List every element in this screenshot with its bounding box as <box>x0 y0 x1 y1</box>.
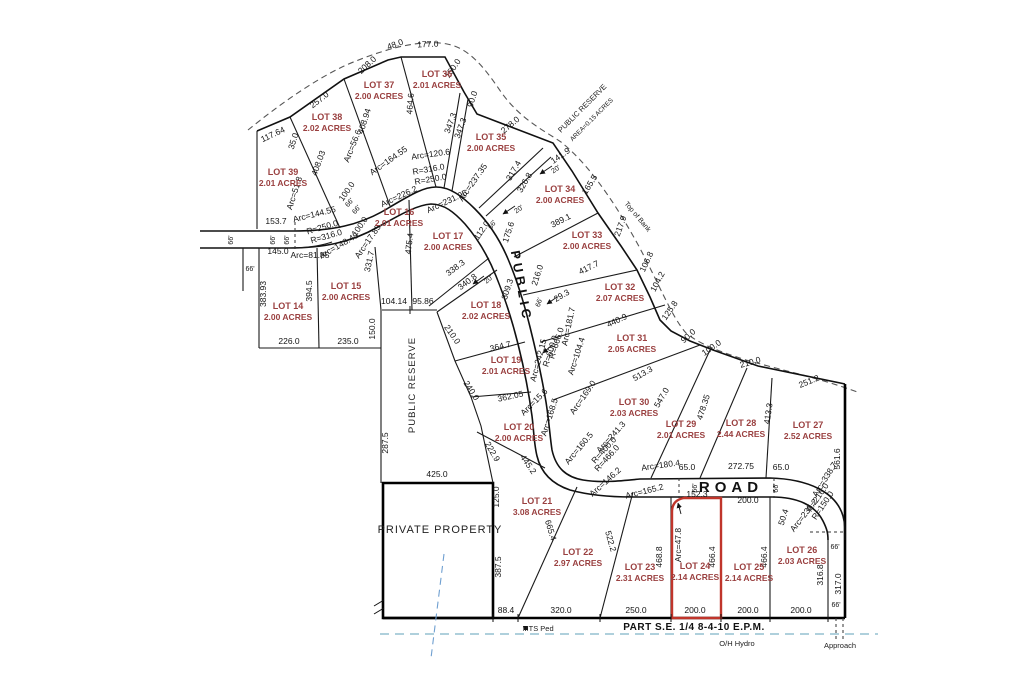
hydro-diagonal-line <box>431 554 444 658</box>
dim-label: Arc=180.4 <box>641 457 681 472</box>
dim-label: 272.75 <box>728 461 754 471</box>
lot-acres-label: 2.01 ACRES <box>482 366 531 376</box>
lot-acres-label: 2.00 ACRES <box>355 91 404 101</box>
lot-name-label: LOT 36 <box>422 69 453 79</box>
lot-acres-label: 2.02 ACRES <box>462 311 511 321</box>
lot-acres-label: 2.07 ACRES <box>596 293 645 303</box>
dim-label: 364.7 <box>489 339 512 354</box>
lot-acres-label: 2.14 ACRES <box>671 572 720 582</box>
lot-name-label: LOT 23 <box>625 562 656 572</box>
lot-name-label: LOT 18 <box>471 300 502 310</box>
dim-label: 362.05 <box>497 388 525 403</box>
lot-acres-label: 2.03 ACRES <box>610 408 659 418</box>
dim-label: 65.0 <box>773 462 790 472</box>
lot-name-label: LOT 25 <box>734 562 765 572</box>
dim-label: 66' <box>351 204 362 215</box>
dim-label: 338.3 <box>444 257 467 278</box>
dim-label: 389.1 <box>549 211 573 230</box>
lot-acres-label: 3.08 ACRES <box>513 507 562 517</box>
dim-label: 35.0 <box>286 131 301 150</box>
lot-name-label: LOT 28 <box>726 418 757 428</box>
dim-label: PRIVATE PROPERTY <box>378 524 503 536</box>
lot-name-label: LOT 39 <box>268 167 299 177</box>
dim-label: 235.0 <box>337 336 359 346</box>
lot-name-label: LOT 30 <box>619 397 650 407</box>
dim-label: Arc=169.0 <box>567 378 598 416</box>
lot-acres-label: 2.97 ACRES <box>554 558 603 568</box>
dim-label: 413.3 <box>762 402 775 425</box>
lot-acres-label: 2.31 ACRES <box>616 573 665 583</box>
lot-name-label: LOT 35 <box>476 132 507 142</box>
lot-name-label: LOT 19 <box>491 355 522 365</box>
lot-acres-label: 2.52 ACRES <box>784 431 833 441</box>
dim-label: 217.9 <box>612 214 629 238</box>
dim-label: 257.0 <box>308 89 331 110</box>
road-name-road: ROAD <box>699 479 763 496</box>
dim-label: 145.0 <box>267 246 289 256</box>
dim-label: 100.0 <box>336 179 357 202</box>
dim-label: 383.93 <box>258 281 268 307</box>
lot-acres-label: 2.02 ACRES <box>303 123 352 133</box>
dim-label: 50.4 <box>776 507 791 526</box>
dim-label: 316.8 <box>815 564 825 586</box>
dim-label: MTS Ped <box>522 624 553 633</box>
label-layer: 117.64257.0208.048.0177.0150.090.0278.01… <box>228 37 856 650</box>
lot-name-label: LOT 33 <box>572 230 603 240</box>
plat-map-page: 117.64257.0208.048.0177.0150.090.0278.01… <box>0 0 1024 682</box>
dim-label: 216.0 <box>529 263 545 287</box>
lot-name-label: LOT 38 <box>312 112 343 122</box>
lot-acres-label: 2.01 ACRES <box>413 80 462 90</box>
lot-name-label: LOT 32 <box>605 282 636 292</box>
dim-label: 408.94 <box>355 107 373 135</box>
lot-name-label: LOT 15 <box>331 281 362 291</box>
dim-label: 153.7 <box>265 216 287 226</box>
dim-label: 340.8 <box>456 271 479 292</box>
dim-label: 177.0 <box>417 38 439 49</box>
dim-label: 522.2 <box>603 530 619 553</box>
lot-name-label: LOT 26 <box>787 545 818 555</box>
dim-label: 475.4 <box>403 232 416 255</box>
lot-acres-label: 2.01 ACRES <box>375 218 424 228</box>
dim-label: 464.6 <box>404 92 416 114</box>
dim-label: 150.0 <box>367 318 377 340</box>
dim-label: 320.0 <box>550 605 572 615</box>
dim-label: 200.0 <box>790 605 812 615</box>
dim-label: 250.0 <box>625 605 647 615</box>
dim-label: 65.0 <box>679 462 696 472</box>
dim-label: 104.14 <box>381 296 407 306</box>
dim-label: 240.0 <box>462 379 482 403</box>
dim-label: 210.0 <box>739 354 762 370</box>
dim-label: 66' <box>831 602 840 609</box>
dim-label: 66' <box>228 235 235 244</box>
dim-label: 417.7 <box>577 258 601 276</box>
lot-name-label: LOT 34 <box>545 184 576 194</box>
dim-label: 226.0 <box>278 336 300 346</box>
lot-name-label: LOT 21 <box>522 496 553 506</box>
dim-label: 20' <box>550 164 561 175</box>
lot-name-label: LOT 27 <box>793 420 824 430</box>
dim-label: 208.0 <box>356 54 379 76</box>
dim-label: Approach <box>824 641 856 650</box>
lot-acres-label: 2.05 ACRES <box>608 344 657 354</box>
lot-acres-label: 2.00 ACRES <box>563 241 612 251</box>
dim-label: 66' <box>830 544 839 551</box>
dim-label: 547.0 <box>652 386 671 410</box>
dim-label: 20' <box>483 274 494 285</box>
plat-map: 117.64257.0208.048.0177.0150.090.0278.01… <box>0 0 1024 682</box>
dim-label: Arc=168.5 <box>538 397 560 437</box>
dim-label: 100.0 <box>700 337 723 358</box>
dim-label: 66' <box>773 483 780 492</box>
lot-acres-label: 2.01 ACRES <box>259 178 308 188</box>
dim-label: 440.9 <box>605 311 629 329</box>
dim-label: Arc=47.8 <box>673 528 683 563</box>
lot-name-label: LOT 20 <box>504 422 535 432</box>
lot-name-label: LOT 16 <box>384 207 415 217</box>
dim-label: 29.3 <box>552 287 572 304</box>
dim-label: 88.4 <box>498 605 515 615</box>
dim-label: Arc=120.6 <box>411 146 451 161</box>
dim-label: 387.5 <box>493 556 503 578</box>
dim-label: 165.5 <box>580 173 600 197</box>
dim-label: 200.0 <box>737 605 759 615</box>
dim-label: 66' <box>270 235 277 244</box>
lot-acres-label: 2.03 ACRES <box>778 556 827 566</box>
dim-label: 66' <box>245 266 254 273</box>
lot-acres-label: 2.00 ACRES <box>264 312 313 322</box>
lot-acres-label: 2.00 ACRES <box>536 195 585 205</box>
dim-label: 117.64 <box>259 124 286 144</box>
lot-name-label: LOT 14 <box>273 301 304 311</box>
lot-name-label: LOT 22 <box>563 547 594 557</box>
dim-label: 112.0 <box>472 219 492 242</box>
dim-label: 125.8 <box>659 298 680 321</box>
lot-name-label: LOT 24 <box>680 561 711 571</box>
dim-label: 425.0 <box>426 469 448 479</box>
lot-name-label: LOT 17 <box>433 231 464 241</box>
dim-label: 106.8 <box>637 250 655 274</box>
dim-label: PUBLIC RESERVE <box>407 337 418 433</box>
lot-acres-label: 2.44 ACRES <box>717 429 766 439</box>
dim-label: 125.0 <box>491 486 501 508</box>
dim-label: 66' <box>284 235 291 244</box>
lot-acres-label: 2.00 ACRES <box>467 143 516 153</box>
dim-label: 317.0 <box>833 573 843 595</box>
dim-label: 287.5 <box>380 432 390 454</box>
dim-label: 326.8 <box>515 171 534 195</box>
dim-label: 200.0 <box>737 495 759 505</box>
lot-name-label: LOT 37 <box>364 80 395 90</box>
lot-acres-label: 2.00 ACRES <box>424 242 473 252</box>
lot-name-label: LOT 31 <box>617 333 648 343</box>
dim-label: 66' <box>535 297 544 308</box>
lot-acres-label: 2.14 ACRES <box>725 573 774 583</box>
dim-label: Arc=226.2 <box>379 183 419 209</box>
dim-label: 48.0 <box>385 37 404 52</box>
dim-label: 175.6 <box>500 220 516 244</box>
lot-acres-label: 2.01 ACRES <box>657 430 706 440</box>
lot-acres-label: 2.00 ACRES <box>495 433 544 443</box>
dim-label: 104.2 <box>648 270 667 294</box>
dim-label: PART S.E. 1/4 8-4-10 E.P.M. <box>623 622 765 633</box>
lot-name-label: LOT 29 <box>666 419 697 429</box>
dim-label: 90.0 <box>465 89 480 108</box>
dim-label: 513.3 <box>631 364 655 383</box>
dim-label: 20' <box>513 204 524 215</box>
dim-label: 394.5 <box>304 280 314 302</box>
dim-label: 95.86 <box>412 296 434 306</box>
dim-label: 200.0 <box>684 605 706 615</box>
dim-label: 445.2 <box>518 453 539 476</box>
dim-label: 478.35 <box>694 393 712 421</box>
dim-label: 66' <box>487 219 498 230</box>
lot-acres-label: 2.00 ACRES <box>322 292 371 302</box>
dim-label: O/H Hydro <box>719 639 754 648</box>
dim-label: 468.8 <box>654 546 664 568</box>
dim-label: 408.03 <box>309 149 327 177</box>
dim-label: 665.4 <box>543 518 559 542</box>
